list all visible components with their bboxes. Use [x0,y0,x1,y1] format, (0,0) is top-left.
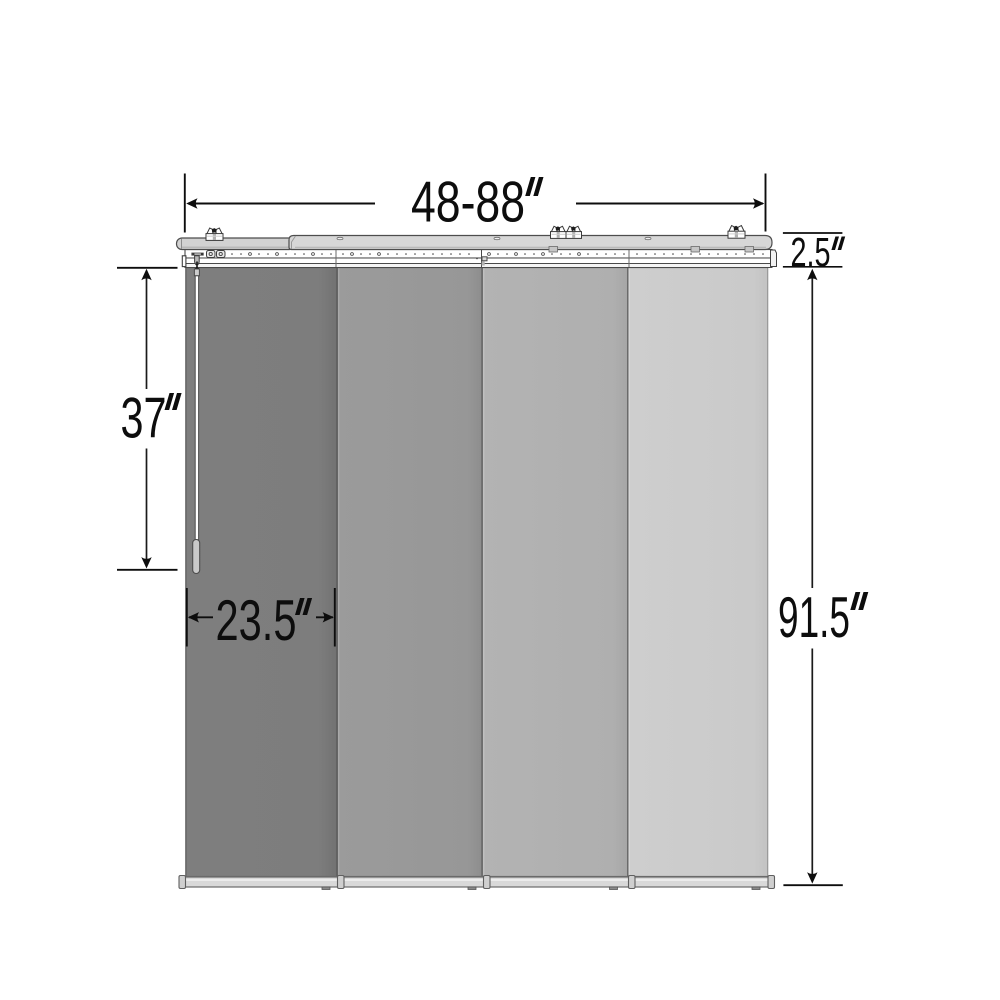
svg-text:2.5: 2.5 [791,229,831,275]
svg-text:37: 37 [121,387,167,451]
svg-text:91.5: 91.5 [778,586,850,650]
svg-text:48-88: 48-88 [411,171,525,235]
svg-text:23.5: 23.5 [216,589,297,653]
